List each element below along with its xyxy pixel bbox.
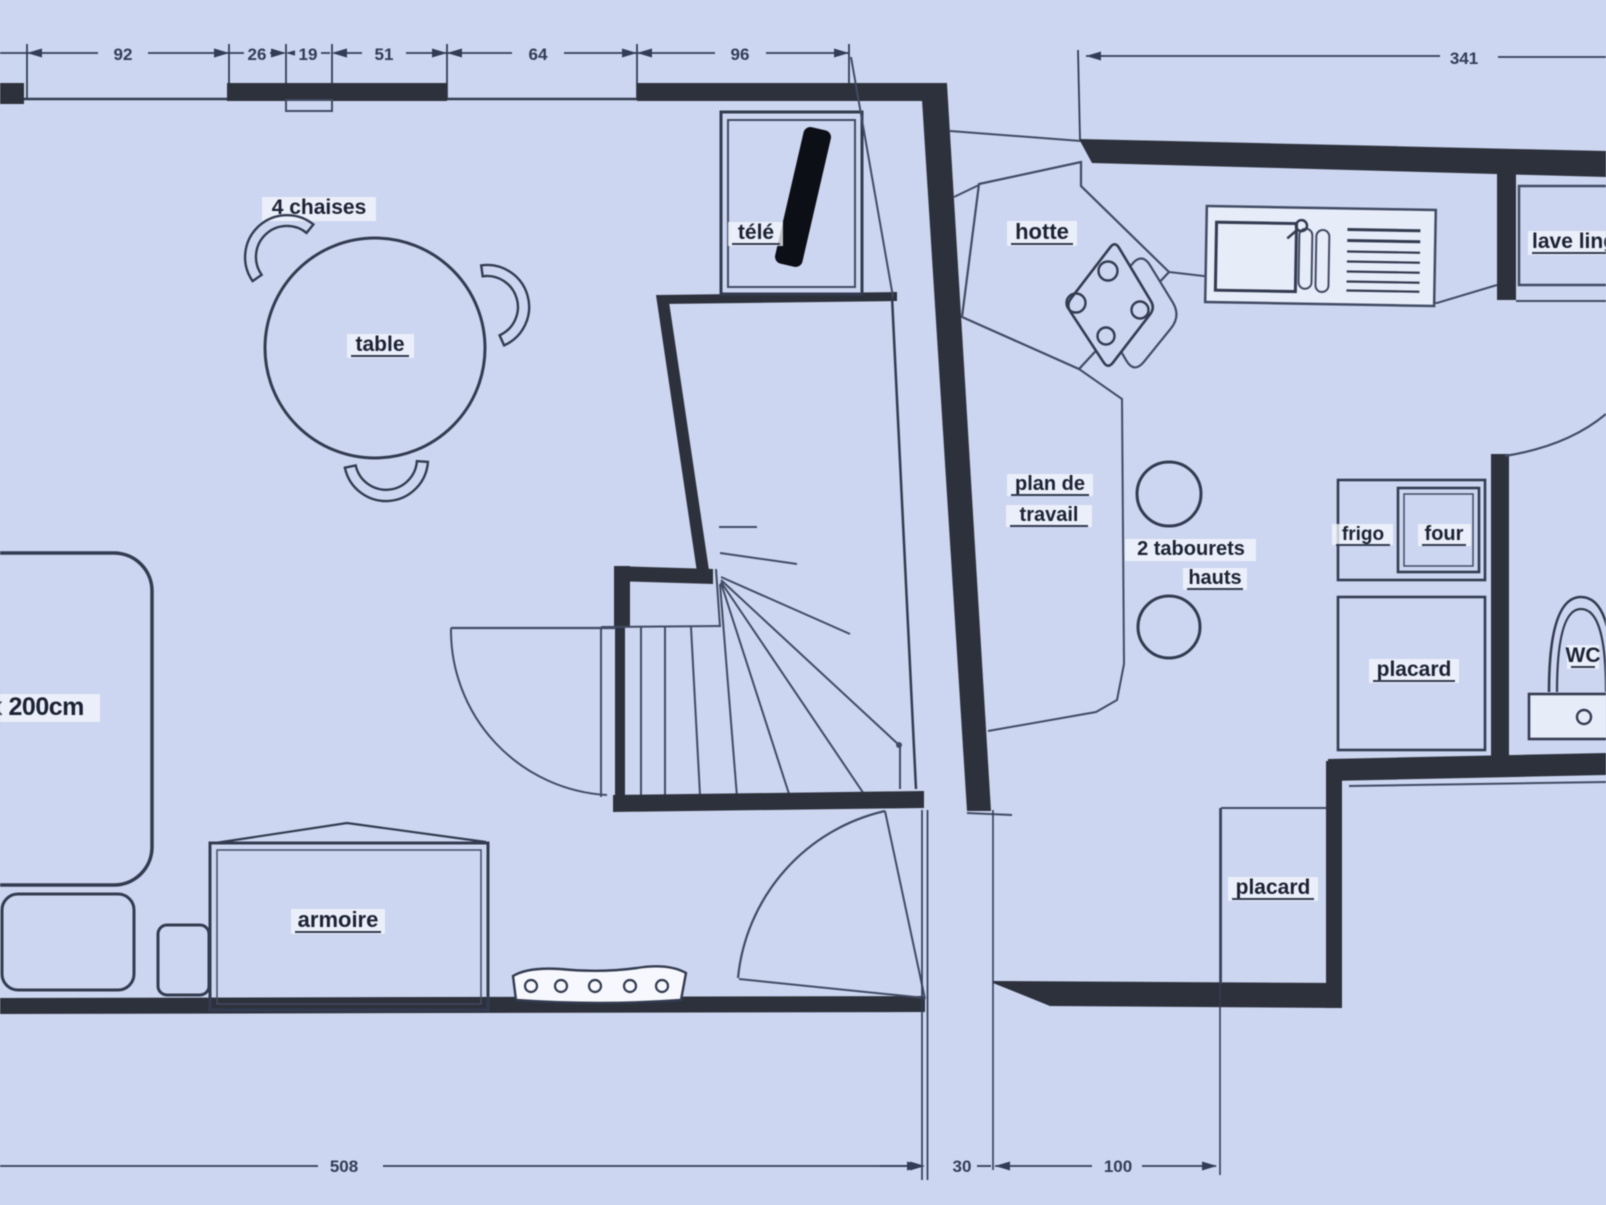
svg-text:lave linge: lave linge [1532,230,1606,253]
svg-text:92: 92 [114,45,133,64]
svg-text:64: 64 [529,45,548,64]
svg-text:30: 30 [953,1157,972,1176]
svg-text:hotte: hotte [1015,219,1069,244]
svg-text:341: 341 [1450,49,1478,68]
svg-text:plan de: plan de [1015,473,1085,495]
svg-text:100: 100 [1104,1157,1132,1176]
svg-text:140 x 200cm: 140 x 200cm [0,693,84,721]
svg-text:placard: placard [1236,876,1311,899]
svg-text:four: four [1425,523,1464,545]
svg-text:télé: télé [738,221,774,244]
svg-text:frigo: frigo [1342,524,1384,545]
svg-text:table: table [355,333,404,356]
svg-text:armoire: armoire [298,907,379,932]
svg-text:WC: WC [1566,644,1601,667]
svg-text:19: 19 [299,45,318,64]
svg-text:508: 508 [330,1157,358,1176]
svg-text:hauts: hauts [1188,567,1241,589]
svg-text:travail: travail [1020,504,1079,526]
svg-text:51: 51 [375,45,394,64]
svg-text:96: 96 [731,45,750,64]
svg-text:placard: placard [1377,658,1452,681]
svg-text:26: 26 [248,45,267,64]
svg-text:2 tabourets: 2 tabourets [1137,538,1245,560]
